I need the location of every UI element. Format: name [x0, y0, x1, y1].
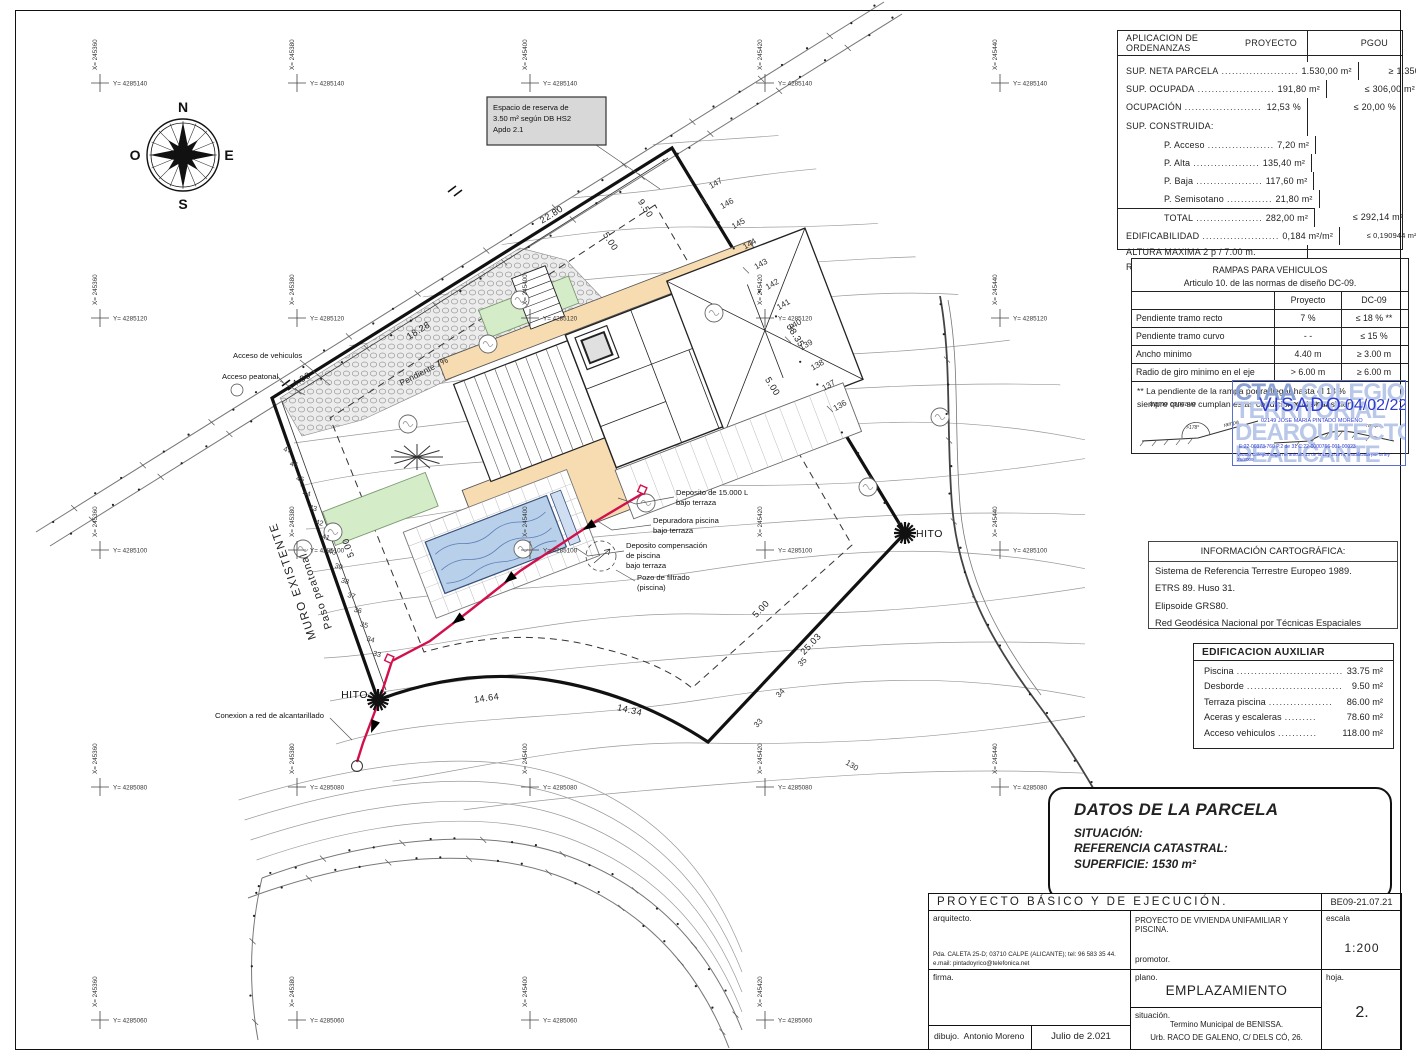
drawing-sheet: { "plan": { "compass": {"n": "N", "e": "… [0, 0, 1416, 1062]
survey-point [873, 5, 875, 7]
visado-label: VISADO [1259, 395, 1343, 417]
visado-legal: Visado Colegial según el articulo 13 de … [1237, 452, 1405, 462]
colegiado-number: 02149 JOSE MARIA PINTADO MORENO [1261, 418, 1363, 424]
sheet-border [15, 10, 1401, 1050]
visado-refs: E:22-00373-760 P.2 de 31 C:22-0000766-00… [1239, 444, 1356, 450]
visado-date: 04/02/22 [1345, 397, 1406, 415]
visado-stamp: CTAA COLEGIO TERRITORIAL DEARQUITECTOS D… [1232, 380, 1406, 466]
